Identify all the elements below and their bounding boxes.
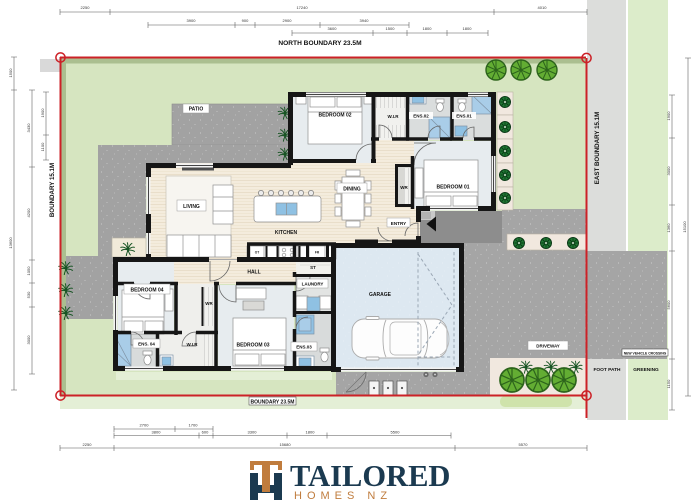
svg-text:DINING: DINING xyxy=(343,187,361,193)
svg-text:1100: 1100 xyxy=(40,142,45,151)
svg-text:BOUNDARY 23.5M: BOUNDARY 23.5M xyxy=(251,399,295,405)
svg-text:3000: 3000 xyxy=(666,166,671,176)
svg-text:1150: 1150 xyxy=(666,379,671,388)
svg-text:4010: 4010 xyxy=(538,5,548,10)
svg-text:3000: 3000 xyxy=(26,335,31,345)
svg-text:HALL: HALL xyxy=(247,270,260,276)
svg-text:2250: 2250 xyxy=(83,442,93,447)
svg-text:WR: WR xyxy=(400,185,408,190)
svg-text:15100: 15100 xyxy=(682,221,687,233)
svg-text:1800: 1800 xyxy=(423,26,433,31)
svg-text:1700: 1700 xyxy=(189,423,199,428)
svg-text:FR: FR xyxy=(315,251,320,255)
svg-text:5600: 5600 xyxy=(666,300,671,310)
svg-text:17240: 17240 xyxy=(296,5,308,10)
svg-text:KITCHEN: KITCHEN xyxy=(275,230,298,236)
svg-text:3300: 3300 xyxy=(248,430,258,435)
svg-text:BEDROOM 04: BEDROOM 04 xyxy=(130,288,163,294)
svg-text:LAUNDRY: LAUNDRY xyxy=(302,282,324,287)
svg-text:600: 600 xyxy=(202,430,209,435)
svg-text:1500: 1500 xyxy=(8,68,13,78)
svg-text:GARAGE: GARAGE xyxy=(369,292,392,298)
svg-text:1360: 1360 xyxy=(666,223,671,233)
svg-text:WR: WR xyxy=(205,301,213,306)
svg-text:W.I.R: W.I.R xyxy=(187,342,199,347)
svg-text:NEW VEHICLE CROSSING: NEW VEHICLE CROSSING xyxy=(624,351,667,355)
svg-text:ENS.01: ENS.01 xyxy=(456,114,472,119)
svg-text:W.I.R: W.I.R xyxy=(388,114,400,119)
svg-text:EAST BOUNDARY 15.1M: EAST BOUNDARY 15.1M xyxy=(594,112,601,185)
svg-text:3940: 3940 xyxy=(360,18,370,23)
svg-text:1900: 1900 xyxy=(666,111,671,121)
svg-text:3430: 3430 xyxy=(26,123,31,133)
svg-text:5570: 5570 xyxy=(519,442,529,447)
svg-text:900: 900 xyxy=(242,18,249,23)
svg-text:GREENING: GREENING xyxy=(633,367,659,373)
svg-text:3900: 3900 xyxy=(187,18,197,23)
svg-text:LIVING: LIVING xyxy=(183,204,200,210)
svg-text:3800: 3800 xyxy=(152,430,162,435)
svg-text:FOOT PATH: FOOT PATH xyxy=(593,367,621,373)
svg-text:HOMES NZ: HOMES NZ xyxy=(294,490,392,500)
svg-text:1500: 1500 xyxy=(386,26,396,31)
svg-text:2900: 2900 xyxy=(283,18,293,23)
svg-text:1050: 1050 xyxy=(26,266,31,276)
svg-text:2700: 2700 xyxy=(140,423,150,428)
svg-text:2250: 2250 xyxy=(81,5,91,10)
svg-text:DRIVEWAY: DRIVEWAY xyxy=(536,344,560,349)
svg-text:TAILORED: TAILORED xyxy=(290,459,450,493)
svg-text:15680: 15680 xyxy=(279,442,291,447)
svg-text:5500: 5500 xyxy=(391,430,401,435)
svg-text:ENS.02: ENS.02 xyxy=(413,114,429,119)
svg-text:1800: 1800 xyxy=(306,430,316,435)
svg-text:13600: 13600 xyxy=(8,237,13,249)
svg-text:BOUNDARY 15.1M: BOUNDARY 15.1M xyxy=(49,163,56,217)
svg-text:1900: 1900 xyxy=(40,108,45,118)
svg-text:1800: 1800 xyxy=(463,26,473,31)
svg-text:3600: 3600 xyxy=(328,26,338,31)
svg-text:ENTRY: ENTRY xyxy=(391,221,406,226)
svg-text:4200: 4200 xyxy=(26,208,31,218)
svg-text:ENS. 04: ENS. 04 xyxy=(138,342,155,347)
svg-text:BEDROOM 01: BEDROOM 01 xyxy=(436,185,469,191)
svg-text:OT: OT xyxy=(255,251,259,255)
svg-text:PATIO: PATIO xyxy=(189,107,204,113)
svg-text:ST: ST xyxy=(310,265,316,270)
svg-text:530: 530 xyxy=(26,291,31,298)
svg-text:BEDROOM 02: BEDROOM 02 xyxy=(318,113,351,119)
svg-text:ENS.03: ENS.03 xyxy=(296,345,312,350)
svg-text:BEDROOM 03: BEDROOM 03 xyxy=(236,343,269,349)
svg-text:NORTH BOUNDARY 23.5M: NORTH BOUNDARY 23.5M xyxy=(278,40,362,47)
